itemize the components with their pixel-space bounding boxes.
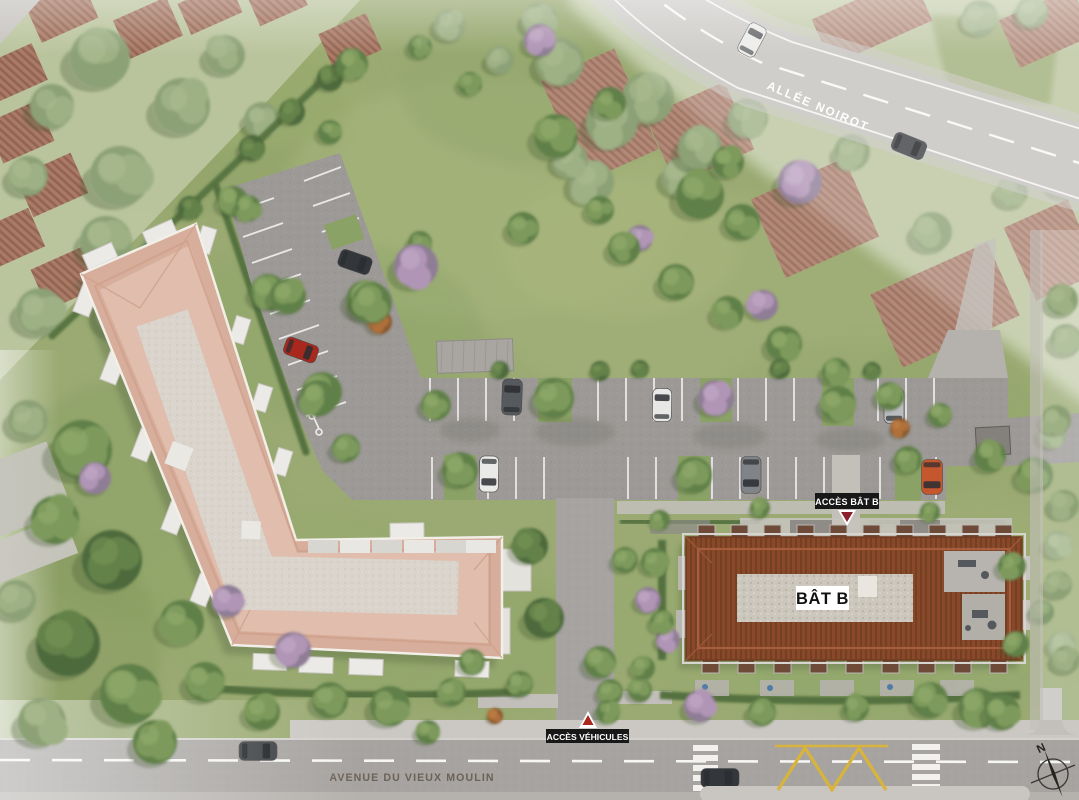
svg-text:BÂT B: BÂT B xyxy=(796,589,849,608)
svg-text:ACCÈS BÂT B: ACCÈS BÂT B xyxy=(815,496,879,507)
svg-text:ACCÈS VÉHICULES: ACCÈS VÉHICULES xyxy=(547,732,629,742)
